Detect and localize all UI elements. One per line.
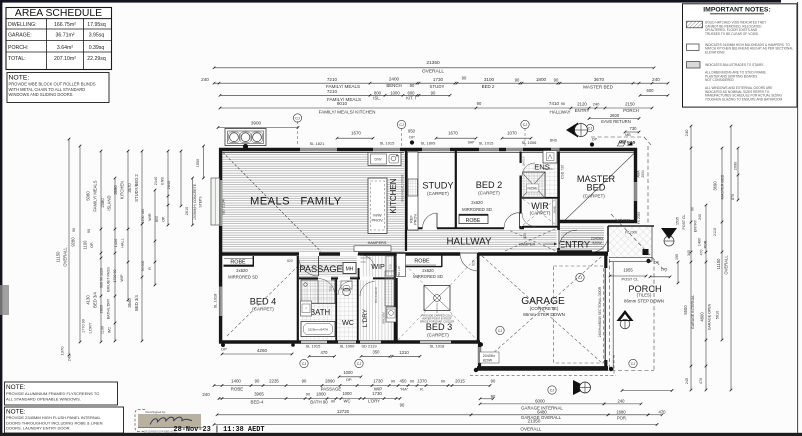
- svg-text:1000: 1000: [390, 90, 400, 95]
- svg-text:1250 180: 1250 180: [141, 209, 145, 224]
- svg-text:240: 240: [685, 378, 689, 384]
- svg-text:90: 90: [331, 400, 335, 404]
- svg-text:90: 90: [302, 379, 307, 384]
- svg-text:90: 90: [87, 229, 91, 233]
- svg-text:CJ: CJ: [523, 123, 528, 127]
- svg-text:DOORS THROUGHOUT INCLUDING ROB: DOORS THROUGHOUT INCLUDING ROBE & LINEN: [6, 420, 103, 425]
- svg-text:90: 90: [477, 101, 482, 106]
- svg-text:90: 90: [561, 101, 566, 106]
- svg-text:(CARPET): (CARPET): [427, 333, 449, 338]
- svg-text:KITCHEN: KITCHEN: [120, 181, 125, 199]
- svg-text:NOTE:: NOTE:: [9, 75, 30, 82]
- svg-text:SL 1006: SL 1006: [522, 140, 538, 145]
- svg-text:OVERALL: OVERALL: [520, 426, 542, 431]
- svg-text:R.: R.: [148, 266, 152, 270]
- svg-text:CJ: CJ: [578, 276, 583, 280]
- svg-text:3670: 3670: [594, 77, 605, 82]
- svg-text:(TILES): (TILES): [637, 293, 652, 298]
- svg-text:PROVIDE ALUMINIUM FRAMED FLYSC: PROVIDE ALUMINIUM FRAMED FLYSCREENS TO: [6, 391, 99, 396]
- svg-text:2015: 2015: [455, 379, 465, 384]
- svg-text:(CARPET): (CARPET): [583, 194, 605, 199]
- svg-text:6000: 6000: [535, 399, 545, 404]
- svg-text:DWELLING:: DWELLING:: [8, 22, 37, 28]
- svg-text:HALL: HALL: [120, 237, 125, 248]
- svg-text:CJ: CJ: [631, 362, 636, 366]
- svg-text:11150: 11150: [56, 251, 61, 263]
- svg-text:ENTRY: ENTRY: [694, 219, 698, 232]
- svg-text:1730: 1730: [373, 379, 383, 384]
- svg-text:90: 90: [491, 379, 496, 384]
- svg-text:EAVE RETURN: EAVE RETURN: [601, 119, 630, 124]
- svg-text:6480: 6480: [537, 409, 547, 414]
- svg-text:SL 1000: SL 1000: [340, 344, 356, 349]
- svg-text:MIRRORED SD: MIRRORED SD: [228, 275, 258, 280]
- svg-text:5500: 5500: [683, 305, 688, 315]
- svg-text:KITCHEN: KITCHEN: [389, 178, 398, 213]
- svg-text:PR 2000: PR 2000: [618, 219, 631, 223]
- svg-text:ISL.: ISL.: [373, 95, 380, 100]
- svg-text:(CARPET): (CARPET): [427, 191, 449, 196]
- svg-text:STEPS: STEPS: [199, 196, 203, 208]
- svg-text:1800: 1800: [316, 392, 326, 397]
- svg-text:WC: WC: [344, 399, 351, 404]
- svg-text:MIRRORED SD: MIRRORED SD: [413, 274, 443, 279]
- svg-text:CJ: CJ: [498, 329, 503, 333]
- svg-text:SL 1015: SL 1015: [380, 141, 396, 146]
- svg-text:SL 1015: SL 1015: [479, 141, 495, 146]
- svg-text:ROBE: ROBE: [466, 218, 481, 224]
- svg-text:3.64m²: 3.64m²: [57, 45, 73, 51]
- svg-text:CJ: CJ: [399, 123, 404, 127]
- svg-text:0.39sq: 0.39sq: [89, 45, 105, 51]
- svg-text:SL 1821: SL 1821: [310, 141, 326, 146]
- svg-text:2040Hx: 2040Hx: [483, 354, 496, 358]
- svg-text:ROBE: ROBE: [414, 259, 430, 265]
- svg-text:17.95sq: 17.95sq: [87, 22, 106, 28]
- svg-text:2400Hx4800W SECTIONAL DOOR: 2400Hx4800W SECTIONAL DOOR: [598, 286, 602, 337]
- svg-text:1680: 1680: [616, 409, 626, 414]
- svg-text:90: 90: [306, 392, 311, 397]
- svg-text:950: 950: [408, 129, 416, 134]
- svg-text:NOT CONSIDERED: NOT CONSIDERED: [705, 78, 735, 82]
- svg-text:2120: 2120: [577, 102, 587, 107]
- svg-text:820: 820: [472, 260, 476, 266]
- svg-text:AREA SCHEDULE: AREA SCHEDULE: [15, 8, 102, 19]
- svg-text:TOTAL:: TOTAL:: [8, 56, 26, 62]
- svg-text:ENTRY: ENTRY: [559, 240, 590, 250]
- svg-text:L'DRY: L'DRY: [362, 308, 369, 327]
- svg-text:CSD 720: CSD 720: [561, 165, 565, 179]
- svg-text:9280: 9280: [71, 237, 76, 247]
- svg-text:5610: 5610: [716, 311, 720, 319]
- svg-text:L'DRY: L'DRY: [89, 322, 93, 333]
- svg-text:2090: 2090: [733, 161, 738, 170]
- svg-text:WC: WC: [108, 327, 112, 334]
- svg-text:ENTRY: ENTRY: [575, 108, 590, 113]
- svg-text:HAMPERS: HAMPERS: [368, 241, 387, 245]
- svg-text:BED 3/4: BED 3/4: [93, 292, 98, 308]
- svg-text:345: 345: [687, 250, 691, 256]
- svg-text:L'DRY: L'DRY: [368, 399, 380, 404]
- svg-text:DP: DP: [592, 138, 598, 142]
- svg-text:1000: 1000: [343, 370, 353, 375]
- svg-text:SL 1015: SL 1015: [306, 344, 322, 349]
- svg-text:90: 90: [554, 78, 559, 83]
- svg-text:FAMILY/ MEALS/ KITCHEN: FAMILY/ MEALS/ KITCHEN: [319, 110, 376, 115]
- svg-text:2600: 2600: [610, 113, 620, 118]
- svg-text:820: 820: [287, 259, 293, 263]
- svg-text:150MM(H) CONCRETE: 150MM(H) CONCRETE: [193, 183, 197, 220]
- svg-text:CJ: CJ: [550, 389, 555, 393]
- svg-text:240: 240: [67, 354, 72, 361]
- svg-text:820W: 820W: [483, 359, 493, 363]
- svg-text:90: 90: [515, 78, 520, 83]
- svg-text:BED 2: BED 2: [482, 84, 495, 89]
- svg-text:WINDOWS AND SLIDING DOORS.: WINDOWS AND SLIDING DOORS.: [9, 92, 74, 97]
- svg-text:2340Hx: 2340Hx: [591, 237, 604, 241]
- svg-text:2890: 2890: [325, 379, 335, 384]
- svg-text:(CARPET): (CARPET): [252, 307, 274, 312]
- svg-text:90: 90: [431, 90, 436, 95]
- svg-text:BATH: BATH: [310, 308, 330, 317]
- svg-text:1400: 1400: [231, 379, 241, 384]
- svg-text:ENS: ENS: [160, 177, 165, 185]
- svg-text:450: 450: [400, 379, 408, 384]
- svg-text:OVERALL: OVERALL: [422, 69, 444, 75]
- svg-text:POST CL: POST CL: [621, 277, 639, 282]
- svg-text:1550: 1550: [196, 159, 200, 167]
- svg-text:SPACE FOR EVAP. COOLER: SPACE FOR EVAP. COOLER: [420, 320, 454, 324]
- svg-text:1730: 1730: [433, 77, 444, 82]
- svg-text:90: 90: [400, 403, 405, 408]
- svg-text:800: 800: [155, 216, 159, 222]
- svg-text:240: 240: [202, 392, 210, 397]
- svg-text:BENCH: BENCH: [544, 167, 554, 171]
- svg-text:BROOM: BROOM: [382, 312, 386, 324]
- svg-text:OP.: OP.: [90, 242, 94, 248]
- svg-text:MEALS: MEALS: [250, 196, 290, 208]
- svg-text:OVERALL: OVERALL: [724, 255, 729, 275]
- svg-text:SD 2134: SD 2134: [221, 198, 226, 214]
- svg-text:1525mm BATH: 1525mm BATH: [308, 328, 328, 332]
- svg-text:240: 240: [201, 77, 209, 82]
- svg-text:BULKHEAD OVER: BULKHEAD OVER: [401, 174, 405, 202]
- svg-text:1420: 1420: [113, 238, 118, 247]
- svg-text:2110: 2110: [713, 228, 717, 236]
- svg-text:ALL STANDARD OPENABLE WINDOWS.: ALL STANDARD OPENABLE WINDOWS.: [6, 397, 81, 402]
- svg-text:WIR: WIR: [148, 213, 152, 221]
- svg-text:TRUSSES TO BE CLEAR OF VOIDS: TRUSSES TO BE CLEAR OF VOIDS: [705, 32, 758, 36]
- svg-text:CJ: CJ: [357, 362, 362, 366]
- svg-text:166.75m²: 166.75m²: [54, 22, 76, 28]
- svg-text:86mm STEP DOWN: 86mm STEP DOWN: [624, 299, 664, 304]
- svg-text:R.: R.: [420, 387, 424, 392]
- svg-text:BENCH: BENCH: [386, 83, 401, 88]
- svg-text:BATH 90: BATH 90: [310, 400, 328, 405]
- svg-text:MIRRORED SD: MIRRORED SD: [462, 207, 492, 212]
- svg-text:FAMILY/ MEALS: FAMILY/ MEALS: [93, 180, 98, 211]
- svg-text:90 600: 90 600: [141, 261, 145, 272]
- svg-text:3540: 3540: [127, 298, 132, 308]
- svg-text:NOTE:: NOTE:: [6, 384, 26, 391]
- svg-text:1730: 1730: [372, 391, 382, 396]
- svg-text:PROVIDE 2340MM HIGH FLUSH PANE: PROVIDE 2340MM HIGH FLUSH PANEL INTERNAL: [6, 415, 101, 420]
- svg-text:BULKHEAD: BULKHEAD: [374, 287, 378, 303]
- svg-text:1100: 1100: [83, 240, 88, 250]
- svg-text:STUDY: STUDY: [422, 181, 453, 191]
- svg-text:BATH/L'DRY: BATH/L'DRY: [107, 298, 111, 319]
- svg-text:11150: 11150: [716, 258, 721, 270]
- svg-text:□: □: [305, 306, 307, 310]
- svg-text:7210: 7210: [327, 77, 338, 82]
- svg-text:2640: 2640: [166, 180, 171, 189]
- svg-text:ELEVATIONS: ELEVATIONS: [705, 50, 725, 54]
- svg-text:SAP: SAP: [468, 141, 476, 145]
- svg-text:1070: 1070: [507, 131, 517, 136]
- svg-text:720: 720: [389, 264, 393, 269]
- svg-text:2235: 2235: [269, 379, 279, 384]
- svg-text:207.10m²: 207.10m²: [54, 56, 76, 62]
- svg-text:POST CL: POST CL: [682, 214, 686, 229]
- svg-text:720: 720: [329, 286, 333, 291]
- svg-text:TOUGHEN GLAZING TO ENSUITE AND: TOUGHEN GLAZING TO ENSUITE AND BATHROOM: [705, 97, 783, 101]
- svg-text:1535: 1535: [676, 217, 680, 225]
- svg-text:1670: 1670: [351, 131, 361, 136]
- svg-text:CJ: CJ: [295, 117, 300, 121]
- svg-text:OVERALL: OVERALL: [63, 247, 68, 267]
- svg-text:22.29sq: 22.29sq: [87, 56, 106, 62]
- svg-text:7210: 7210: [327, 89, 338, 94]
- svg-text:2480: 2480: [100, 198, 105, 208]
- svg-text:BED 2: BED 2: [476, 180, 503, 190]
- svg-text:2x620: 2x620: [471, 200, 483, 205]
- svg-text:OP.: OP.: [162, 216, 166, 222]
- svg-text:WIR: WIR: [531, 201, 549, 211]
- svg-text:PASSAGE: PASSAGE: [299, 264, 342, 274]
- svg-text:HALLWAY: HALLWAY: [549, 110, 570, 115]
- svg-text:BED 4: BED 4: [250, 297, 277, 307]
- svg-text:MH: MH: [346, 267, 354, 273]
- svg-text:4130: 4130: [86, 295, 91, 305]
- svg-text:ISLAND: ISLAND: [107, 195, 112, 210]
- svg-text:1770 90: 1770 90: [82, 319, 86, 333]
- svg-text:21350: 21350: [426, 60, 440, 66]
- svg-text:POR.: POR.: [704, 240, 708, 249]
- svg-text:IMPORTANT NOTES:: IMPORTANT NOTES:: [703, 6, 770, 13]
- svg-text:(CARPET): (CARPET): [478, 191, 500, 196]
- svg-text:MASTER BED: MASTER BED: [583, 85, 614, 90]
- svg-text:1000: 1000: [342, 391, 352, 396]
- svg-text:4260: 4260: [257, 348, 268, 353]
- svg-text:PROV.: PROV.: [371, 218, 383, 223]
- svg-text:POR.: POR.: [617, 416, 627, 421]
- svg-text:SD 2119: SD 2119: [361, 344, 377, 349]
- svg-text:DocuSigned by:: DocuSigned by:: [146, 410, 167, 414]
- svg-text:3965: 3965: [254, 392, 264, 397]
- svg-text:FAMILY: FAMILY: [300, 196, 341, 208]
- svg-text:WITH METAL CHAIN TO ALL STANDA: WITH METAL CHAIN TO ALL STANDARD: [9, 87, 86, 92]
- svg-text:1490: 1490: [698, 238, 702, 246]
- svg-text:90: 90: [462, 76, 467, 81]
- svg-text:PROV.: PROV.: [414, 213, 418, 224]
- svg-text:4800: 4800: [700, 312, 705, 322]
- svg-text:240: 240: [593, 102, 600, 107]
- svg-text:1370: 1370: [60, 346, 65, 356]
- svg-text:28-Nov-23 | 11:38 AEDT: 28-Nov-23 | 11:38 AEDT: [174, 426, 265, 434]
- svg-text:3690: 3690: [713, 181, 718, 191]
- svg-text:90: 90: [410, 379, 415, 384]
- svg-text:470: 470: [700, 250, 704, 256]
- svg-text:2820: 2820: [99, 304, 104, 313]
- svg-text:195: 195: [661, 267, 668, 272]
- svg-text:2150: 2150: [625, 102, 635, 107]
- svg-text:470: 470: [659, 409, 667, 414]
- svg-text:PORCH: PORCH: [623, 108, 639, 113]
- svg-text:240: 240: [684, 129, 689, 136]
- svg-text:12720: 12720: [337, 409, 350, 414]
- svg-text:CJ: CJ: [302, 362, 307, 366]
- svg-text:(CONCRETE): (CONCRETE): [530, 306, 559, 311]
- svg-text:240: 240: [652, 77, 660, 82]
- svg-text:MB: MB: [625, 133, 631, 137]
- svg-text:86mm STEP DOWN: 86mm STEP DOWN: [523, 312, 565, 317]
- svg-text:PORCH:: PORCH:: [8, 45, 28, 51]
- svg-text:2400: 2400: [389, 77, 400, 82]
- svg-text:BR/UNIT PASS.: BR/UNIT PASS.: [107, 266, 111, 292]
- svg-text:90: 90: [255, 379, 260, 384]
- svg-text:SL 1018: SL 1018: [213, 293, 218, 309]
- svg-text:ROBE: ROBE: [231, 387, 244, 392]
- svg-text:1310: 1310: [399, 350, 409, 355]
- svg-text:90: 90: [410, 83, 415, 88]
- svg-text:BNS: BNS: [550, 139, 558, 143]
- svg-text:SL 1018: SL 1018: [430, 344, 446, 349]
- svg-text:1720 90: 1720 90: [113, 270, 117, 283]
- svg-text:240: 240: [698, 214, 702, 220]
- svg-text:960 90 1220: 960 90 1220: [100, 268, 104, 288]
- svg-text:FX 2000: FX 2000: [625, 231, 637, 235]
- svg-text:D/W: D/W: [375, 158, 383, 162]
- svg-text:90: 90: [441, 379, 446, 384]
- svg-text:GARAGE INTERNAL: GARAGE INTERNAL: [691, 295, 695, 329]
- svg-text:600: 600: [647, 88, 655, 93]
- svg-text:GARAGE OPEN: GARAGE OPEN: [708, 303, 712, 330]
- svg-text:SL 1809: SL 1809: [421, 141, 437, 146]
- svg-text:7410: 7410: [549, 101, 560, 106]
- svg-text:BED-4: BED-4: [251, 400, 264, 405]
- svg-text:2x620: 2x620: [422, 268, 434, 273]
- svg-text:2x620: 2x620: [236, 268, 248, 273]
- svg-text:3690: 3690: [113, 185, 118, 195]
- svg-text:9010: 9010: [337, 101, 348, 106]
- svg-text:240: 240: [618, 399, 626, 404]
- svg-text:90: 90: [691, 207, 695, 211]
- svg-text:1370: 1370: [417, 379, 427, 384]
- svg-text:3900: 3900: [251, 121, 262, 126]
- svg-text:36.71m²: 36.71m²: [55, 32, 74, 38]
- svg-text:STUDY: STUDY: [430, 84, 445, 89]
- svg-text:ROBE: ROBE: [230, 260, 246, 266]
- svg-text:DP: DP: [221, 347, 227, 352]
- svg-text:870: 870: [731, 194, 735, 200]
- svg-text:90: 90: [72, 228, 76, 232]
- svg-text:PROVIDE WBE BLOCK OUT ROLLER B: PROVIDE WBE BLOCK OUT ROLLER BLINDS: [9, 82, 96, 87]
- svg-text:3570: 3570: [127, 183, 132, 193]
- svg-text:21350: 21350: [528, 419, 541, 424]
- svg-text:NICHE: NICHE: [528, 187, 538, 191]
- svg-text:(CARPET): (CARPET): [530, 211, 551, 216]
- svg-text:350: 350: [373, 350, 381, 355]
- svg-text:3.95sq: 3.95sq: [89, 32, 105, 38]
- svg-text:BED: BED: [587, 183, 606, 193]
- svg-text:DF13A89E-0074-BBE-A51C: DF13A89E-0074-BBE-A51C: [144, 430, 177, 434]
- svg-text:820: 820: [523, 233, 527, 239]
- svg-text:BED 3/4: BED 3/4: [134, 295, 139, 311]
- svg-text:WIP: WIP: [120, 274, 124, 282]
- svg-text:2140: 2140: [153, 176, 158, 185]
- svg-text:2004: 2004: [641, 170, 645, 178]
- svg-text:GARAGE:: GARAGE:: [8, 32, 32, 38]
- svg-text:STUDY/BED 2: STUDY/BED 2: [134, 174, 139, 202]
- svg-text:470: 470: [699, 378, 703, 384]
- svg-text:FX 2030: FX 2030: [637, 212, 641, 225]
- svg-text:730: 730: [630, 126, 638, 131]
- svg-text:2610: 2610: [185, 207, 189, 215]
- svg-text:1800: 1800: [536, 77, 547, 82]
- svg-text:HALLWAY: HALLWAY: [446, 237, 491, 248]
- svg-text:"RA": "RA": [400, 387, 409, 392]
- svg-text:920W: 920W: [592, 241, 602, 245]
- svg-text:1670: 1670: [448, 131, 458, 136]
- svg-text:MASTER BED: MASTER BED: [721, 174, 725, 199]
- svg-text:470: 470: [321, 350, 329, 355]
- svg-text:WC: WC: [342, 318, 354, 327]
- svg-text:CJ: CJ: [588, 127, 593, 131]
- svg-text:JAMB: JAMB: [553, 206, 557, 214]
- svg-text:DOORS. LAUNDRY ENTRY DOOR.: DOORS. LAUNDRY ENTRY DOOR.: [6, 426, 71, 431]
- svg-text:OP.: OP.: [346, 377, 352, 382]
- svg-text:90: 90: [391, 379, 396, 384]
- svg-text:1100: 1100: [101, 326, 105, 334]
- svg-text:1955: 1955: [623, 268, 633, 273]
- svg-text:195: 195: [675, 254, 679, 260]
- svg-text:DP: DP: [409, 136, 415, 140]
- svg-text:INDICATES BALUSTRADES TO STAIR: INDICATES BALUSTRADES TO STAIRS: [705, 63, 763, 67]
- svg-text:KIT. I: KIT. I: [406, 95, 416, 100]
- svg-text:3100: 3100: [484, 77, 495, 82]
- svg-text:BR LIN: BR LIN: [397, 266, 401, 276]
- svg-text:5080: 5080: [86, 191, 91, 201]
